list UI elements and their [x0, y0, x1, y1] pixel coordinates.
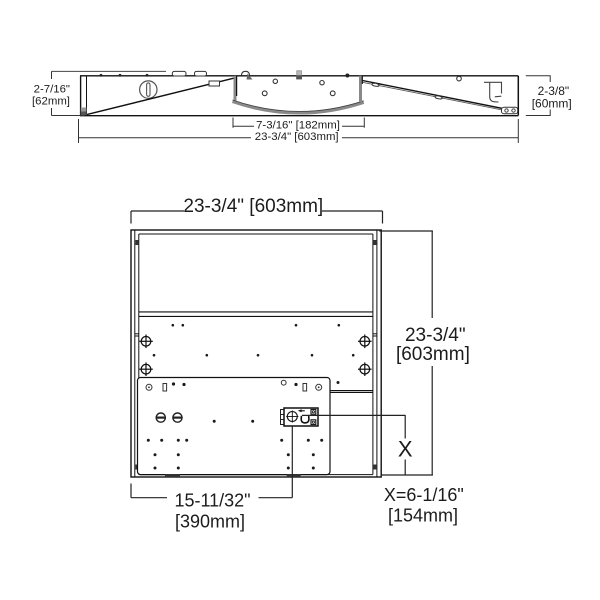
svg-text:15-11/32": 15-11/32"	[174, 491, 250, 511]
svg-text:23-3/4" [603mm]: 23-3/4" [603mm]	[183, 196, 323, 217]
svg-text:2-7/16": 2-7/16"	[34, 84, 70, 96]
svg-text:[154mm]: [154mm]	[388, 506, 458, 526]
svg-text:23-3/4" [603mm]: 23-3/4" [603mm]	[255, 131, 339, 143]
svg-text:[62mm]: [62mm]	[32, 95, 70, 107]
svg-text:[390mm]: [390mm]	[175, 512, 245, 532]
svg-text:7-3/16" [182mm]: 7-3/16" [182mm]	[256, 119, 340, 131]
svg-text:[603mm]: [603mm]	[396, 344, 470, 365]
svg-text:[60mm]: [60mm]	[532, 96, 572, 110]
svg-text:23-3/4": 23-3/4"	[405, 325, 466, 346]
svg-text:X: X	[398, 437, 413, 462]
svg-text:X=6-1/16": X=6-1/16"	[384, 485, 464, 505]
